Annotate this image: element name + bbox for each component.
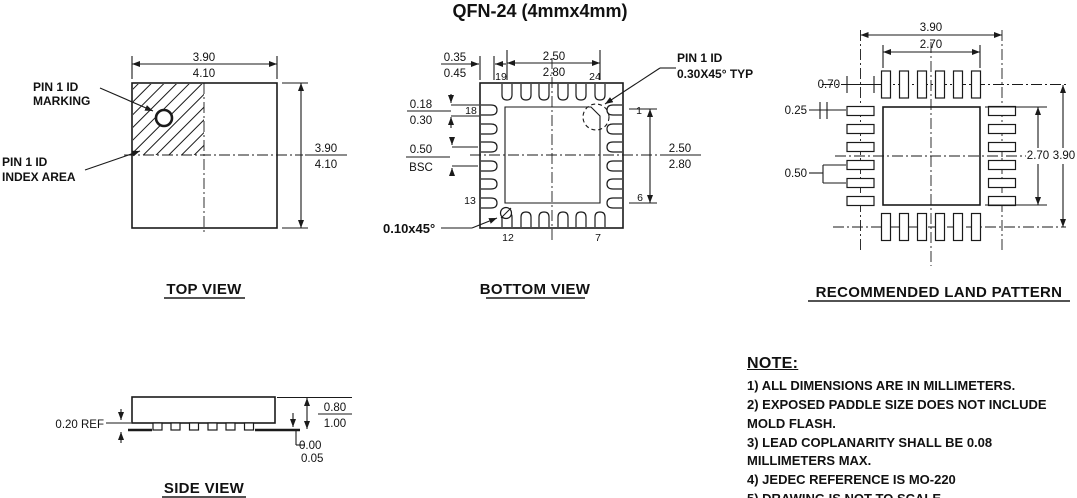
chamfer-label: 0.10x45° (383, 221, 435, 236)
pad (595, 212, 605, 227)
view-title: SIDE VIEW (164, 480, 245, 497)
pitch-dimension: 0.50 BSC (406, 139, 478, 174)
inner-span-dimension: 2.70 (883, 39, 980, 68)
pad (539, 212, 549, 227)
dim-qualifier: BSC (409, 162, 433, 174)
notes-list: 1) ALL DIMENSIONS ARE IN MILLIMETERS. 2)… (747, 377, 1077, 498)
dim-value-max: 4.10 (193, 68, 215, 80)
note-item: 5) DRAWING IS NOT TO SCALE. (747, 490, 1077, 498)
callout-line1: PIN 1 ID (2, 155, 48, 169)
view-title: RECOMMENDED LAND PATTERN (816, 284, 1063, 301)
pad (989, 143, 1016, 152)
dim-value-max: 0.30 (410, 115, 432, 127)
pin-number-24: 24 (589, 71, 601, 83)
pad (558, 84, 568, 100)
pin1-id-highlight-circle (583, 104, 609, 130)
dim-value-max: 0.45 (444, 68, 466, 80)
note-item: 4) JEDEC REFERENCE IS MO-220 (747, 471, 1077, 490)
dim-value-min: 0.80 (324, 402, 346, 414)
pad (847, 107, 874, 116)
left-pads (481, 105, 497, 208)
callout-line2: MARKING (33, 94, 90, 108)
dim-value-min: 3.90 (315, 143, 337, 155)
dim-value-min: 2.50 (543, 51, 565, 63)
pad-length-dimension: 0.70 (818, 76, 880, 93)
pad (502, 84, 512, 100)
dim-value: 0.20 REF (55, 419, 104, 431)
callout-line1: PIN 1 ID (33, 80, 79, 94)
standoff-dimension: 0.00 0.05 (293, 413, 323, 465)
pin-number-1: 1 (636, 105, 642, 117)
pad (521, 212, 531, 227)
lead (171, 423, 180, 430)
pad (847, 179, 874, 188)
package-drawing-page: QFN-24 (4mmx4mm) 3.90 4.10 3.90 4.10 PIN… (0, 0, 1077, 498)
pad (481, 198, 497, 208)
dim-value-max: 2.80 (543, 67, 565, 79)
pad (989, 179, 1016, 188)
pad (900, 71, 909, 98)
dim-value-min: 3.90 (193, 52, 215, 64)
pad (481, 161, 497, 171)
pad (607, 105, 622, 115)
pin-number-7: 7 (595, 232, 601, 244)
pin-number-13: 13 (464, 195, 476, 207)
top-pads (502, 84, 605, 100)
pad (558, 212, 568, 227)
outer-span-dimension: 3.90 (861, 22, 1003, 35)
pad (989, 107, 1016, 116)
callout-line1: PIN 1 ID (677, 51, 723, 65)
dim-value-min: 0.00 (299, 440, 321, 452)
pad (918, 214, 927, 241)
pad-width-dimension: 0.25 (785, 102, 846, 119)
pad (607, 198, 622, 208)
dim-value-min: 2.50 (669, 143, 691, 155)
pin-number-12: 12 (502, 232, 514, 244)
pad (936, 214, 945, 241)
pad (900, 214, 909, 241)
pad (607, 179, 622, 189)
pad (481, 142, 497, 152)
dim-value: 0.70 (818, 79, 840, 91)
lead (245, 423, 254, 430)
top-view: 3.90 4.10 3.90 4.10 PIN 1 ID MARKING PIN… (2, 52, 347, 298)
callout-line2: 0.30X45° TYP (677, 67, 753, 81)
lead-thickness-dimension: 0.20 REF (55, 409, 131, 443)
notes-section: NOTE: 1) ALL DIMENSIONS ARE IN MILLIMETE… (747, 355, 1077, 498)
height-dimension: 0.80 1.00 (277, 398, 352, 431)
dim-value-max: 2.80 (669, 159, 691, 171)
side-leads (153, 423, 254, 430)
pad (882, 71, 891, 98)
pad (847, 161, 874, 170)
callout-line2: INDEX AREA (2, 170, 76, 184)
pad (847, 143, 874, 152)
leader-arrow (605, 68, 660, 104)
land-pattern-view: 3.90 2.70 0.70 0.25 0.50 (785, 22, 1076, 301)
pin1-id-callout: PIN 1 ID 0.30X45° TYP (605, 51, 753, 104)
note-item: 3) LEAD COPLANARITY SHALL BE 0.08 MILLIM… (747, 434, 1077, 472)
bottom-view: 19 24 18 13 12 7 1 6 0.35 0.45 2.50 2.80… (383, 50, 753, 298)
dim-value-inner: 2.70 (1027, 150, 1049, 162)
dim-value: 0.50 (785, 168, 807, 180)
dim-value-min: 0.18 (410, 99, 432, 111)
pad (576, 84, 586, 100)
pin-number-19: 19 (495, 71, 507, 83)
dim-value-outer: 3.90 (1053, 150, 1075, 162)
package-body-outline (132, 397, 275, 423)
lead (208, 423, 217, 430)
lead (226, 423, 235, 430)
leader-arrow (472, 218, 497, 228)
pad (481, 124, 497, 134)
note-item: 1) ALL DIMENSIONS ARE IN MILLIMETERS. (747, 377, 1077, 396)
page-title: QFN-24 (4mmx4mm) (452, 1, 627, 21)
dim-value-max: 1.00 (324, 418, 346, 430)
pad (882, 214, 891, 241)
pad (936, 71, 945, 98)
pad (918, 71, 927, 98)
lead (190, 423, 199, 430)
pad (954, 214, 963, 241)
dim-value: 3.90 (920, 22, 942, 34)
pad (972, 71, 981, 98)
pad (576, 212, 586, 227)
pad (607, 124, 622, 134)
note-item: 2) EXPOSED PADDLE SIZE DOES NOT INCLUDE … (747, 396, 1077, 434)
notes-heading: NOTE: (747, 355, 798, 373)
lead (153, 423, 162, 430)
side-view: 0.20 REF 0.80 1.00 0.00 0.05 SIDE VIEW (55, 397, 352, 497)
dim-value-min: 0.35 (444, 52, 466, 64)
dim-value-max: 4.10 (315, 159, 337, 171)
view-title: BOTTOM VIEW (480, 281, 591, 298)
dim-value-max: 0.05 (301, 453, 323, 465)
dim-value: 0.25 (785, 105, 807, 117)
pad (607, 142, 622, 152)
pad (847, 125, 874, 134)
pad (595, 84, 605, 100)
pad (481, 179, 497, 189)
pad (989, 125, 1016, 134)
pin-number-18: 18 (465, 105, 477, 117)
right-span-dimension: 2.50 2.80 (629, 109, 701, 203)
pad (954, 71, 963, 98)
pad (972, 214, 981, 241)
pin1-marking-circle (156, 110, 172, 126)
right-pads (607, 105, 622, 208)
pad (521, 84, 531, 100)
top-span-dimension: 2.50 2.80 (507, 50, 600, 80)
pad (847, 197, 874, 206)
dim-value: 0.50 (410, 144, 432, 156)
height-dimension: 3.90 4.10 (282, 83, 347, 228)
pin1-index-callout: PIN 1 ID INDEX AREA (2, 151, 140, 184)
pitch-dimension: 0.50 (785, 165, 846, 183)
dim-value: 2.70 (920, 39, 942, 51)
width-dimension: 3.90 4.10 (132, 52, 277, 80)
bottom-pads (502, 212, 605, 227)
pad (989, 161, 1016, 170)
pad (539, 84, 549, 100)
pad (989, 197, 1016, 206)
pin-number-6: 6 (637, 192, 643, 204)
pad (481, 105, 497, 115)
view-title: TOP VIEW (166, 281, 242, 298)
pad (607, 161, 622, 171)
